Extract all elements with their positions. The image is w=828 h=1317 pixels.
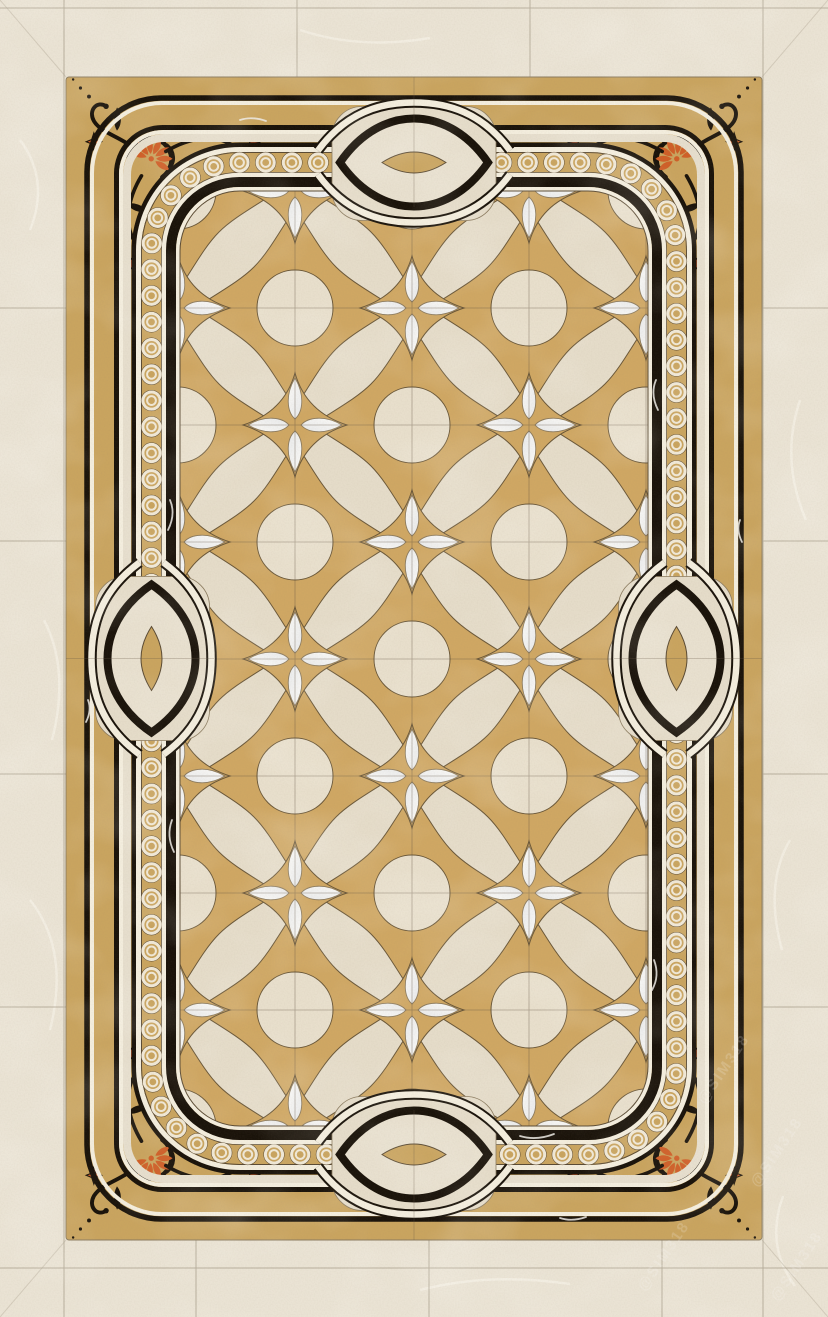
tile-artwork-canvas: @SIM318 @SIM318 @SIM318 @SIM318 xyxy=(0,0,828,1317)
marble-medallion-tile-artwork: @SIM318 @SIM318 @SIM318 @SIM318 xyxy=(0,0,828,1317)
marble-grain-texture xyxy=(0,0,828,1317)
